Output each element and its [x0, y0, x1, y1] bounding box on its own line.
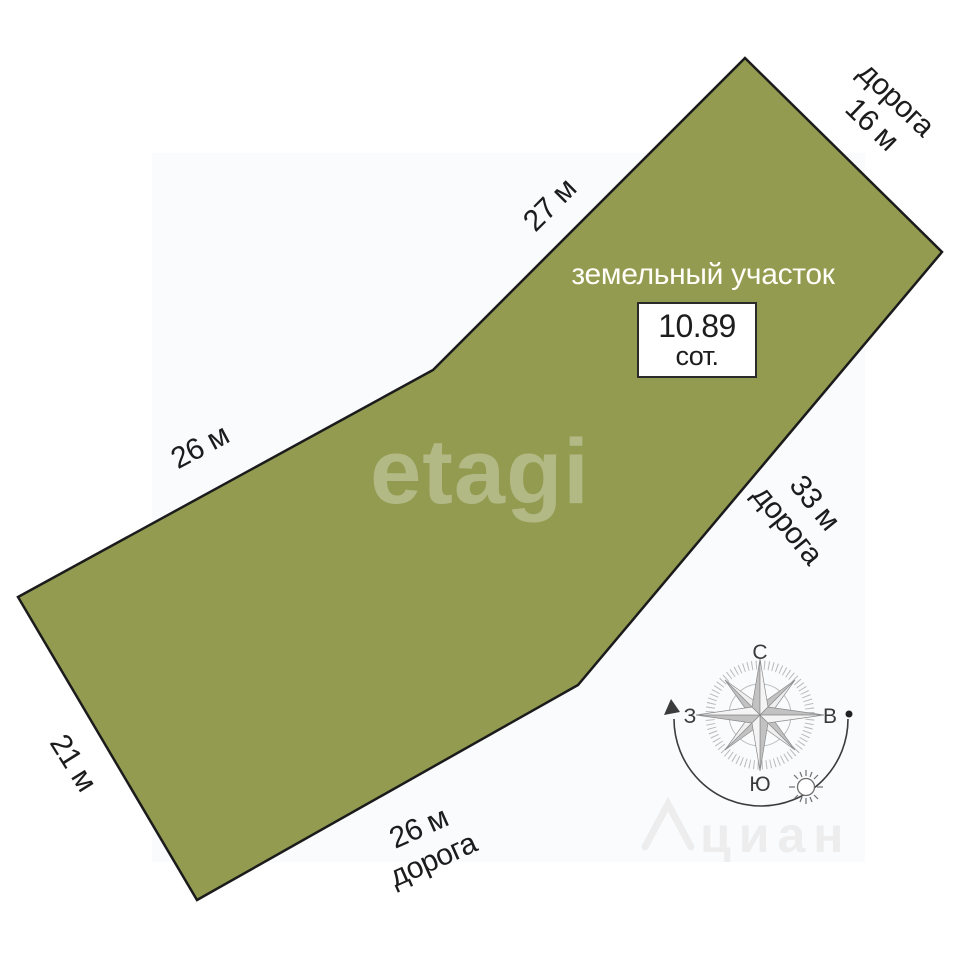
cian-roof-icon: [645, 804, 691, 847]
land-plot-diagram: etagi земельный участок 10.89 сот. 27 м …: [0, 0, 960, 960]
cian-watermark: циан: [700, 806, 851, 864]
